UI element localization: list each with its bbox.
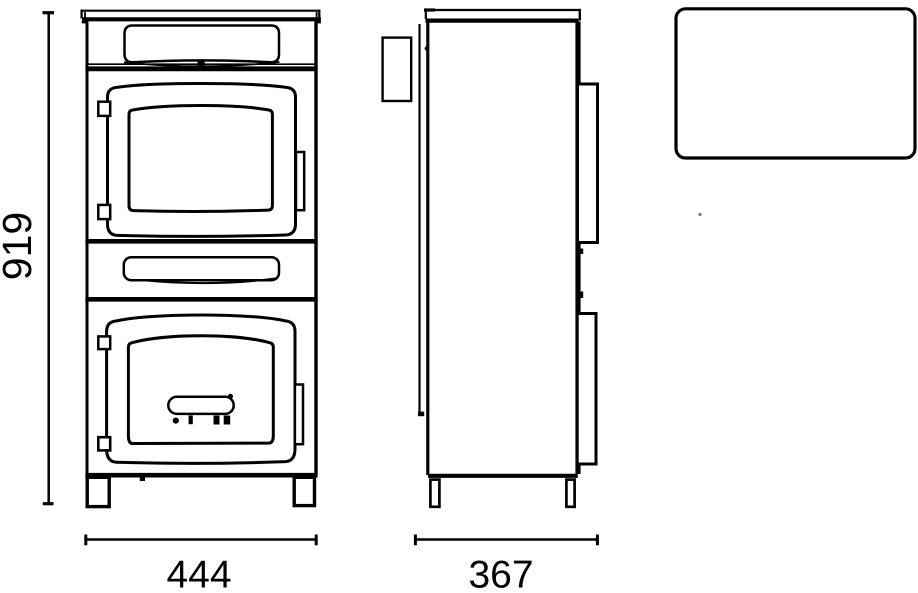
svg-text:444: 444 — [166, 554, 231, 593]
svg-text:367: 367 — [468, 554, 533, 593]
svg-text:919: 919 — [0, 212, 40, 280]
